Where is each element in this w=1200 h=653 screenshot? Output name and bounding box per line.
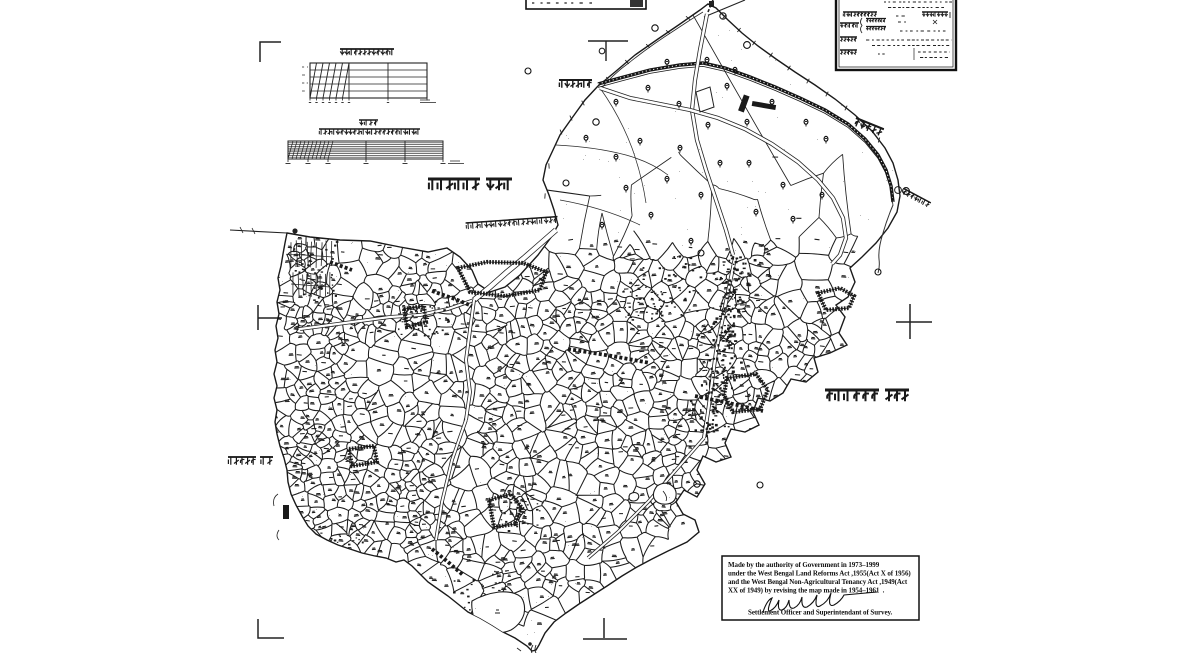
svg-text:under the West Bengal Land Ref: under the West Bengal Land Reforms Act ,… xyxy=(728,570,911,578)
svg-text:Made by the authority of Gover: Made by the authority of Government in 1… xyxy=(728,561,880,569)
svg-text:and the West Bengal Non-Agricu: and the West Bengal Non-Agricultural Ten… xyxy=(728,578,908,586)
svg-text:Settlement Officer and Superin: Settlement Officer and Superintendant of… xyxy=(748,609,893,617)
